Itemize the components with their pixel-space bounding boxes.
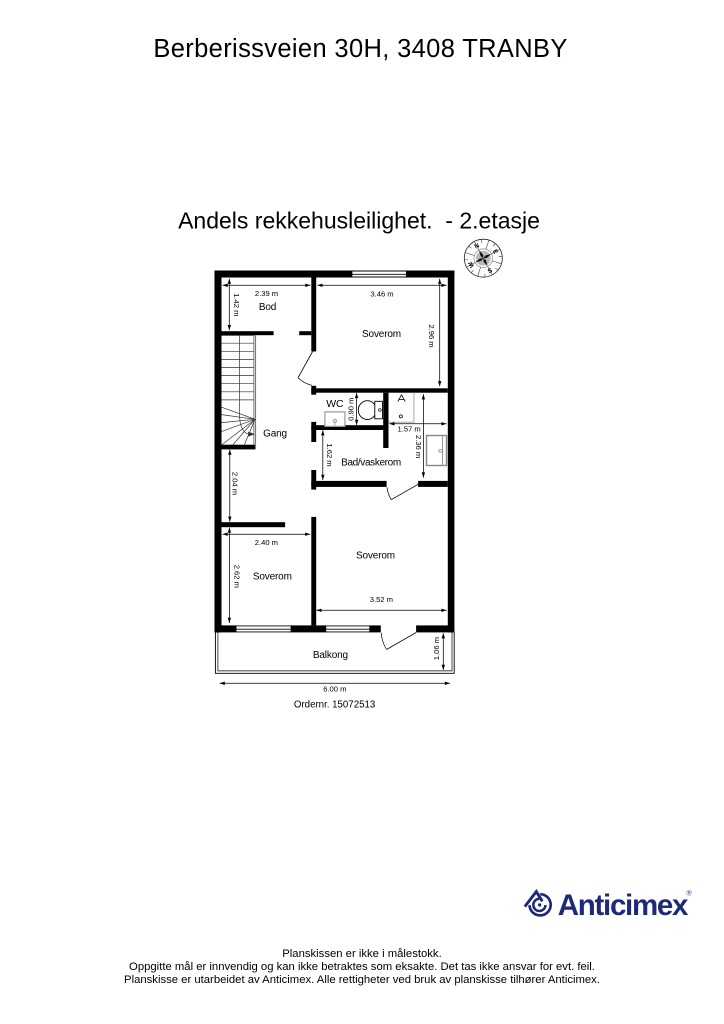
- svg-text:2.62 m: 2.62 m: [232, 565, 241, 588]
- svg-text:Andels rekkehusleilighet. - 2: Andels rekkehusleilighet. - 2.etasje: [178, 208, 540, 234]
- svg-text:2.96 m: 2.96 m: [427, 324, 436, 347]
- svg-text:2.04 m: 2.04 m: [231, 472, 240, 495]
- svg-text:Gang: Gang: [263, 429, 287, 440]
- svg-text:Bod: Bod: [259, 302, 276, 313]
- svg-text:3.46 m: 3.46 m: [370, 290, 393, 299]
- svg-text:Soverom: Soverom: [356, 551, 395, 562]
- svg-text:WC: WC: [326, 398, 344, 410]
- svg-text:1.62 m: 1.62 m: [325, 443, 334, 466]
- svg-text:6.00 m: 6.00 m: [323, 685, 346, 694]
- svg-text:Balkong: Balkong: [313, 650, 348, 661]
- svg-text:Planskisse er utarbeidet av An: Planskisse er utarbeidet av Anticimex. A…: [124, 974, 600, 986]
- svg-text:2.39 m: 2.39 m: [255, 289, 278, 298]
- svg-text:1.57 m: 1.57 m: [397, 425, 420, 434]
- svg-text:0.90 m: 0.90 m: [346, 398, 355, 421]
- svg-text:Planskissen er ikke i målestok: Planskissen er ikke i målestokk.: [282, 948, 441, 960]
- svg-text:Soverom: Soverom: [253, 572, 292, 583]
- svg-text:3.52 m: 3.52 m: [370, 595, 393, 604]
- svg-text:Bad/vaskerom: Bad/vaskerom: [341, 458, 401, 469]
- svg-text:Soverom: Soverom: [362, 329, 401, 340]
- svg-text:1.42 m: 1.42 m: [232, 293, 241, 316]
- svg-text:Anticimex: Anticimex: [558, 889, 689, 922]
- svg-text:Ordernr. 15072513: Ordernr. 15072513: [294, 700, 375, 711]
- svg-text:®: ®: [687, 890, 693, 898]
- svg-text:2.40 m: 2.40 m: [255, 538, 278, 547]
- svg-text:2.36 m: 2.36 m: [414, 435, 423, 458]
- svg-text:Berberissveien 30H, 3408 TRANB: Berberissveien 30H, 3408 TRANBY: [153, 35, 567, 63]
- svg-text:Oppgitte mål er innvendig og k: Oppgitte mål er innvendig og kan ikke be…: [129, 961, 595, 973]
- svg-text:1.06 m: 1.06 m: [432, 637, 441, 660]
